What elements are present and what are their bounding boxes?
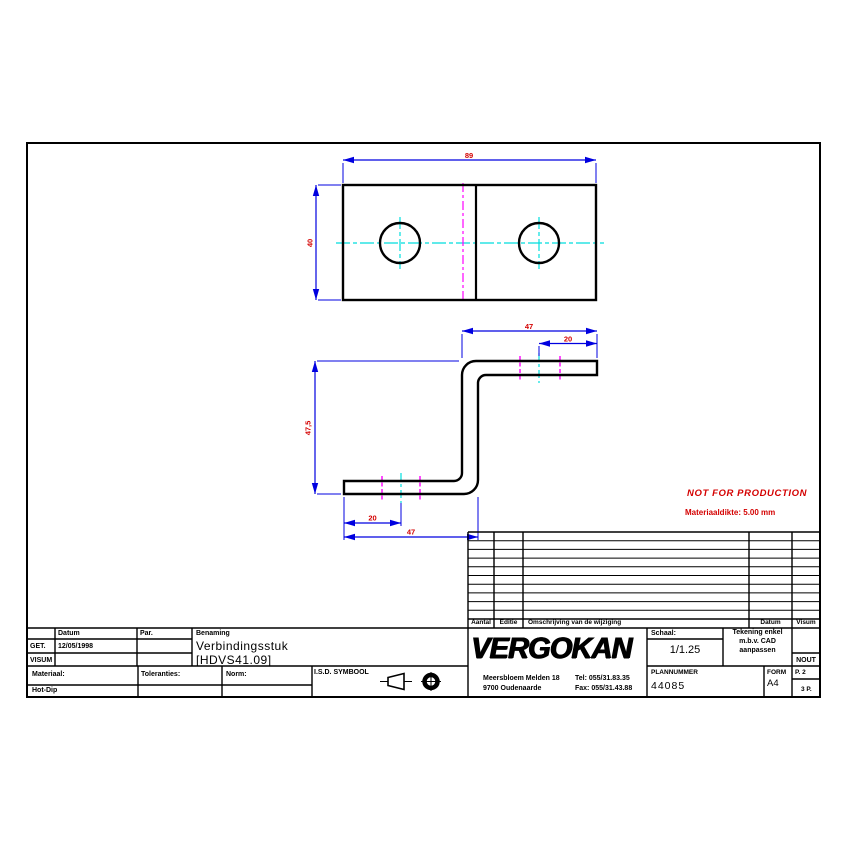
omschrijving-header: Omschrijving van de wijziging bbox=[528, 620, 621, 627]
materiaal-value: Hot-Dip bbox=[32, 687, 57, 694]
dim-value: 47 bbox=[407, 528, 415, 537]
page-number: P. 2 bbox=[795, 670, 806, 677]
top-view: 89 40 bbox=[306, 151, 605, 302]
dim-side-top-length: 47 bbox=[462, 322, 597, 358]
cad-note-line2: m.b.v. CAD bbox=[723, 638, 792, 645]
company-fax: Fax: 055/31.43.88 bbox=[575, 685, 632, 692]
drawing-sheet: 89 40 47 bbox=[0, 0, 842, 842]
toleranties-label: Toleranties: bbox=[141, 671, 180, 678]
not-for-production-stamp: NOT FOR PRODUCTION bbox=[687, 489, 807, 499]
datum-header: Datum bbox=[749, 620, 792, 627]
technical-drawing: 89 40 47 bbox=[0, 0, 842, 842]
dim-top-width: 89 bbox=[343, 151, 596, 183]
get-label: GET. bbox=[30, 643, 46, 650]
aantal-header: Aantal bbox=[468, 620, 494, 627]
materiaal-label: Materiaal: bbox=[32, 671, 65, 678]
dim-value: 89 bbox=[465, 151, 473, 160]
company-logo: VERGOKAN bbox=[471, 634, 631, 664]
datum-header: Datum bbox=[58, 630, 80, 637]
projection-symbol-icon bbox=[380, 672, 441, 691]
dim-side-height: 47,5 bbox=[304, 361, 460, 494]
visum-header: Visum bbox=[792, 620, 820, 627]
part-code: [HDVS41.09] bbox=[196, 654, 272, 666]
side-view: 47 20 47,5 20 bbox=[304, 322, 598, 540]
benaming-header: Benaming bbox=[196, 630, 230, 637]
dim-value: 20 bbox=[368, 514, 376, 523]
dim-value: 20 bbox=[564, 335, 572, 344]
cad-note-line3: aanpassen bbox=[723, 647, 792, 654]
dim-side-bottom-offset: 20 bbox=[344, 503, 401, 526]
material-thickness-note: Materiaaldikte: 5.00 mm bbox=[685, 509, 775, 517]
dim-top-height: 40 bbox=[306, 185, 342, 300]
dim-value: 47 bbox=[525, 322, 533, 331]
get-date: 12/05/1998 bbox=[58, 643, 93, 650]
schaal-label: Schaal: bbox=[651, 630, 676, 637]
plannummer-label: PLANNUMMER bbox=[651, 670, 698, 677]
plannummer-value: 44085 bbox=[651, 681, 685, 692]
dim-side-top-offset: 20 bbox=[539, 335, 597, 357]
company-address-line2: 9700 Oudenaarde bbox=[483, 685, 541, 692]
form-label: FORM bbox=[767, 670, 786, 677]
total-pages: 3 P. bbox=[801, 687, 812, 694]
schaal-value: 1/1.25 bbox=[647, 645, 723, 656]
company-address-line1: Meersbloem Melden 18 bbox=[483, 675, 560, 682]
dim-value: 47,5 bbox=[304, 421, 313, 436]
part-name: Verbindingsstuk bbox=[196, 640, 288, 652]
company-tel: Tel: 055/31.83.35 bbox=[575, 675, 630, 682]
cad-note-line1: Tekening enkel bbox=[723, 629, 792, 636]
sheet-frame bbox=[27, 143, 820, 697]
norm-label: Norm: bbox=[226, 671, 247, 678]
isd-symbol-label: I.S.D. SYMBOOL bbox=[314, 669, 369, 676]
dim-side-bottom-length: 47 bbox=[344, 497, 478, 540]
form-value: A4 bbox=[767, 679, 779, 689]
dim-value: 40 bbox=[306, 239, 315, 247]
visum-value: NOUT bbox=[792, 657, 820, 664]
editie-header: Editie bbox=[494, 620, 523, 627]
par-header: Par. bbox=[140, 630, 153, 637]
z-profile-outline bbox=[344, 361, 597, 494]
visum-label: VISUM bbox=[30, 657, 52, 664]
